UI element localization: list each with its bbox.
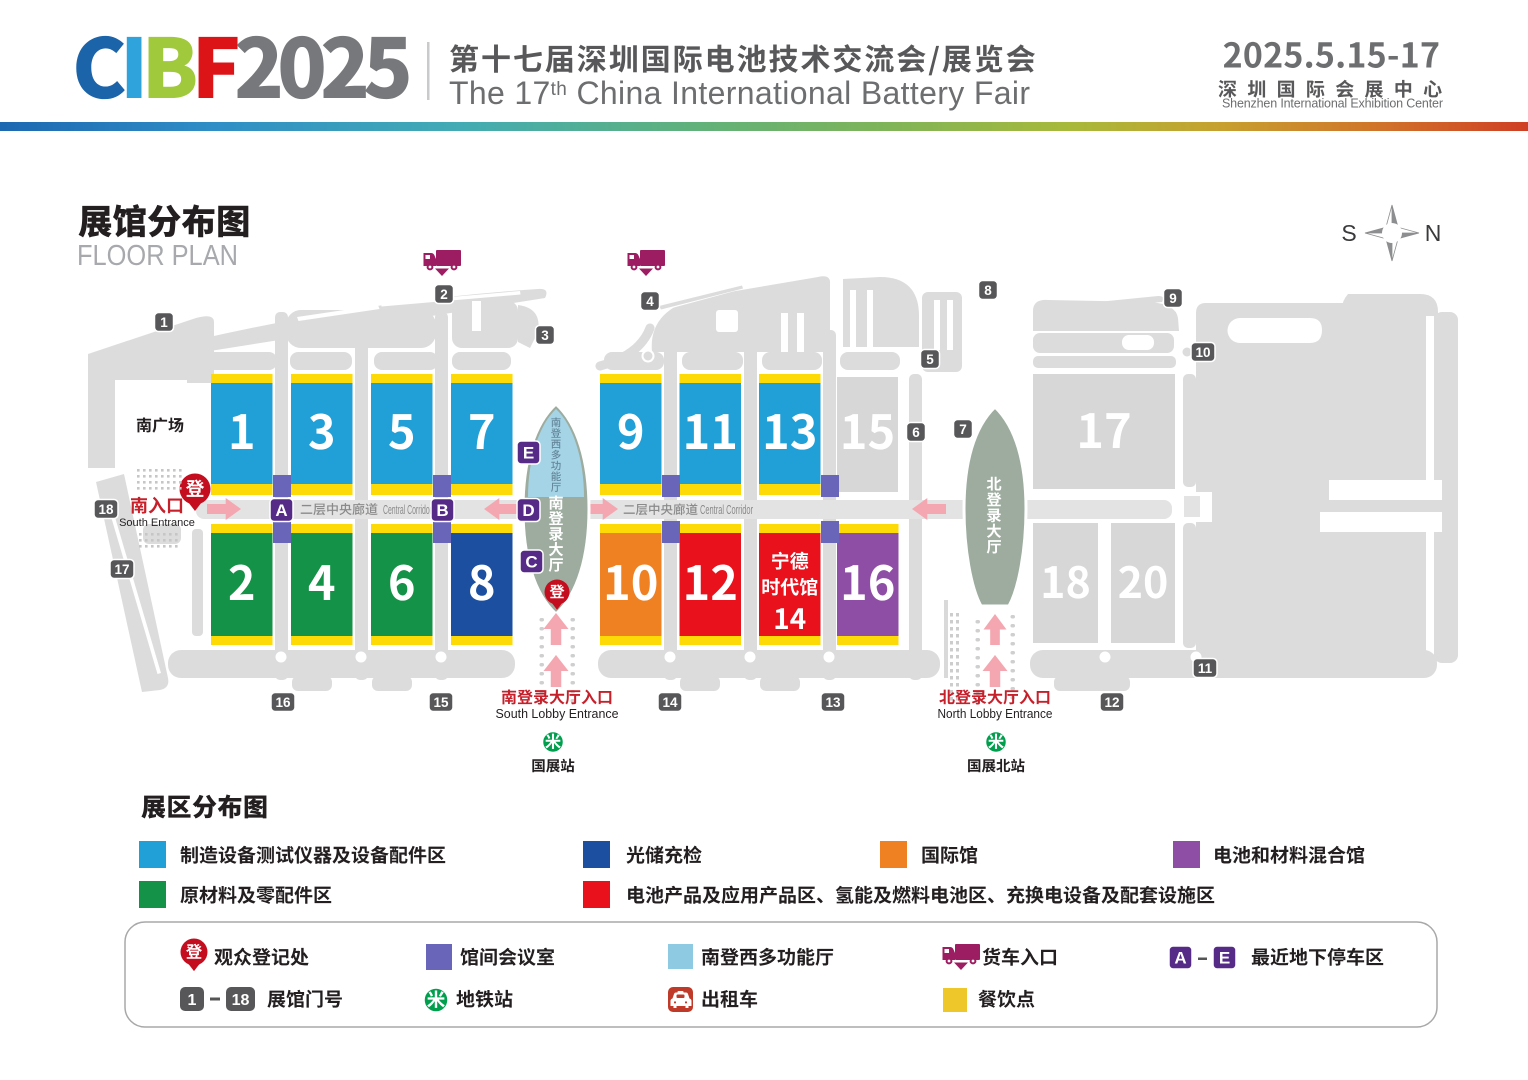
svg-text:13: 13: [825, 695, 841, 710]
svg-text:15: 15: [433, 695, 449, 710]
svg-text:C: C: [525, 553, 537, 572]
svg-text:14: 14: [662, 695, 678, 710]
svg-text:9: 9: [1169, 291, 1177, 306]
svg-text:E: E: [523, 444, 534, 463]
svg-text:Central Corridor: Central Corridor: [383, 503, 432, 517]
svg-text:18: 18: [232, 992, 250, 1009]
svg-text:5: 5: [926, 352, 934, 367]
svg-text:E: E: [1219, 949, 1230, 968]
svg-text:4: 4: [646, 294, 654, 309]
svg-text:D: D: [522, 501, 534, 520]
svg-text:A: A: [275, 501, 287, 520]
svg-text:N: N: [1425, 220, 1442, 246]
svg-text:18: 18: [98, 502, 114, 517]
svg-text:South Entrance: South Entrance: [119, 517, 195, 529]
svg-text:A: A: [1174, 949, 1186, 968]
svg-text:6: 6: [912, 425, 920, 440]
svg-text:1: 1: [160, 315, 168, 330]
svg-text:B: B: [436, 501, 448, 520]
svg-text:12: 12: [1104, 695, 1119, 710]
svg-text:2: 2: [440, 287, 448, 302]
svg-text:7: 7: [959, 422, 967, 437]
svg-text:3: 3: [541, 328, 549, 343]
svg-text:Central Corridor: Central Corridor: [700, 503, 753, 517]
svg-text:S: S: [1341, 220, 1356, 246]
svg-text:16: 16: [275, 695, 291, 710]
svg-text:North Lobby Entrance: North Lobby Entrance: [938, 707, 1053, 721]
svg-text:FLOOR PLAN: FLOOR PLAN: [77, 240, 238, 272]
svg-text:8: 8: [984, 283, 992, 298]
svg-text:10: 10: [1195, 345, 1210, 360]
svg-text:17: 17: [114, 562, 129, 577]
svg-text:11: 11: [1198, 661, 1213, 676]
svg-text:The 17th China International B: The 17th China International Battery Fai…: [449, 75, 1030, 111]
svg-text:South Lobby Entrance: South Lobby Entrance: [496, 707, 619, 721]
svg-text:1: 1: [188, 992, 197, 1009]
svg-text:Shenzhen International Exhibit: Shenzhen International Exhibition Center: [1222, 97, 1443, 111]
